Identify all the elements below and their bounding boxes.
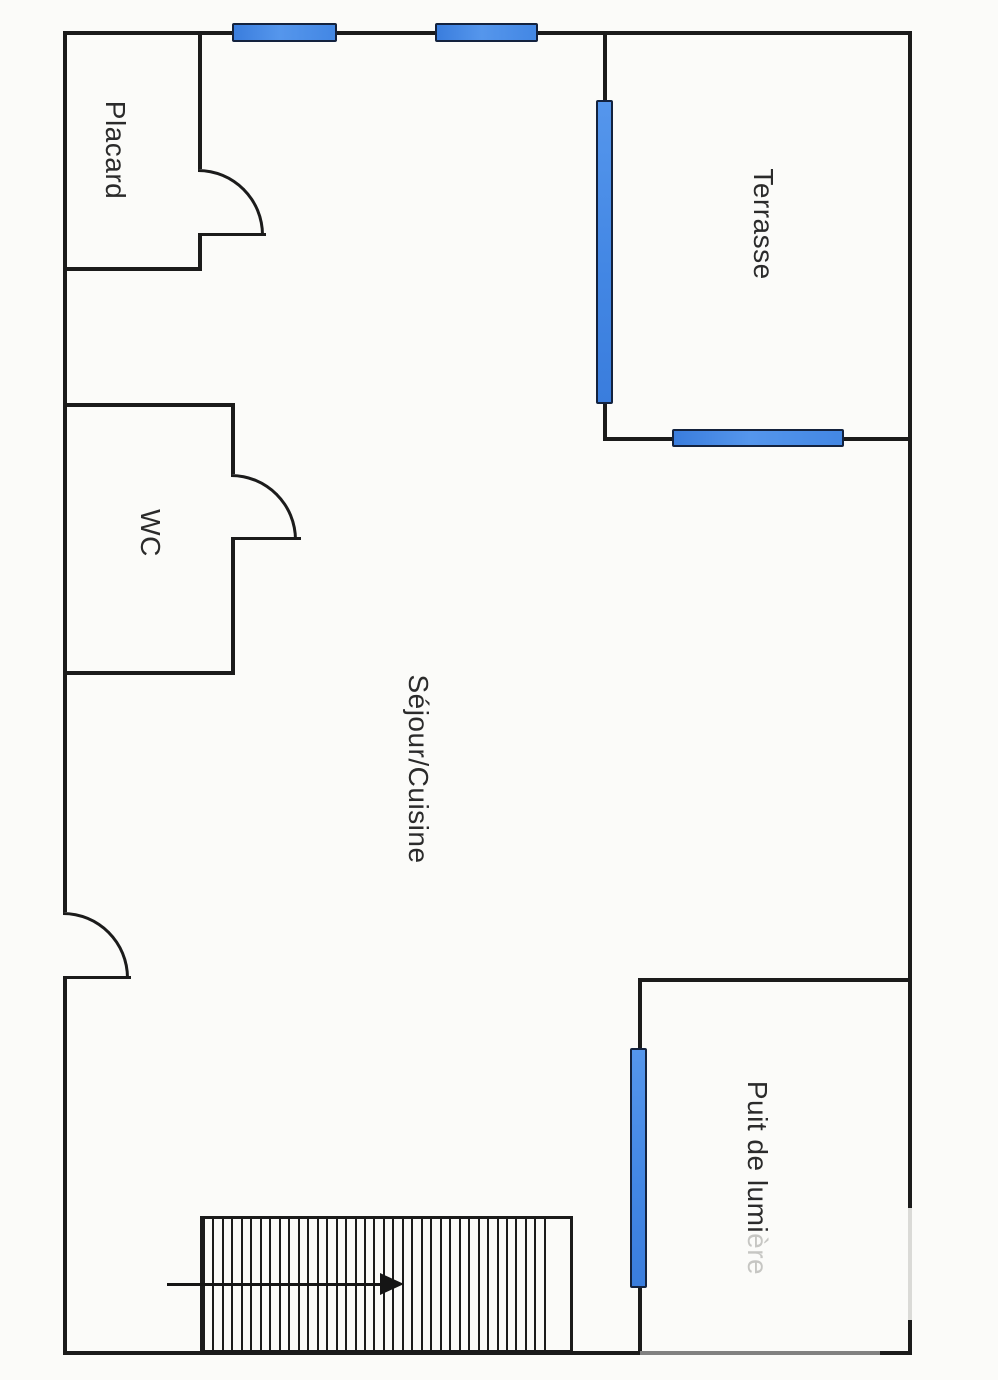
window-terrasse-bottom — [672, 429, 844, 447]
room-label-puit-faded: ère — [742, 1233, 773, 1275]
window-top-1 — [232, 23, 337, 42]
stair-tread-line — [487, 1219, 489, 1350]
wall-outer-right-faded-segment — [908, 1208, 912, 1320]
stairs-direction-arrow-head — [380, 1273, 404, 1295]
wall-wc-top — [63, 403, 235, 407]
room-label-sejour: Séjour/Cuisine — [402, 674, 434, 863]
wall-wc-right-upper — [231, 403, 235, 474]
stair-tread-line — [497, 1219, 499, 1350]
room-label-terrasse: Terrasse — [747, 168, 779, 279]
stair-tread-line — [411, 1219, 413, 1350]
wall-outer-left-lower — [63, 978, 67, 1355]
door-arc-entrance — [63, 912, 129, 978]
room-label-puit-main: Puit de lumi — [742, 1081, 773, 1233]
wall-placard-right-upper — [198, 31, 202, 169]
stair-tread-line — [468, 1219, 470, 1350]
stairs-direction-arrow-line — [167, 1283, 382, 1286]
door-leaf-wc — [231, 537, 301, 540]
room-label-puit: Puit de lumière — [741, 1081, 773, 1275]
door-arc-wc — [231, 474, 297, 540]
stair-tread-line — [506, 1219, 508, 1350]
room-label-placard: Placard — [99, 101, 131, 199]
room-label-wc: WC — [134, 509, 166, 557]
window-puit-left — [630, 1048, 647, 1288]
wall-puit-top — [638, 978, 908, 982]
stair-tread-line — [440, 1219, 442, 1350]
watermark-fade — [640, 1351, 880, 1355]
door-arc-placard — [198, 169, 264, 235]
wall-placard-bottom — [63, 267, 202, 271]
stair-tread-line — [459, 1219, 461, 1350]
stair-tread-line — [525, 1219, 527, 1350]
stair-tread-line — [430, 1219, 432, 1350]
stair-tread-line — [544, 1219, 546, 1350]
stair-tread-line — [534, 1219, 536, 1350]
wall-placard-right-lower — [198, 233, 202, 271]
stair-tread-line — [478, 1219, 480, 1350]
door-leaf-entrance — [63, 976, 131, 979]
floor-plan: Placard WC Séjour/Cuisine Terrasse Puit … — [0, 0, 998, 1380]
wall-outer-right — [908, 31, 912, 1355]
wall-terrasse-left-upper — [603, 31, 607, 102]
stair-tread-line — [421, 1219, 423, 1350]
door-leaf-placard — [198, 233, 266, 236]
wall-terrasse-left-lower — [603, 402, 607, 441]
stair-tread-line — [515, 1219, 517, 1350]
window-top-2 — [435, 23, 538, 42]
wall-outer-left-upper — [63, 31, 67, 912]
window-terrasse-left — [596, 100, 613, 404]
wall-wc-right-lower — [231, 537, 235, 675]
wall-wc-bottom — [63, 671, 235, 675]
stair-tread-line — [449, 1219, 451, 1350]
